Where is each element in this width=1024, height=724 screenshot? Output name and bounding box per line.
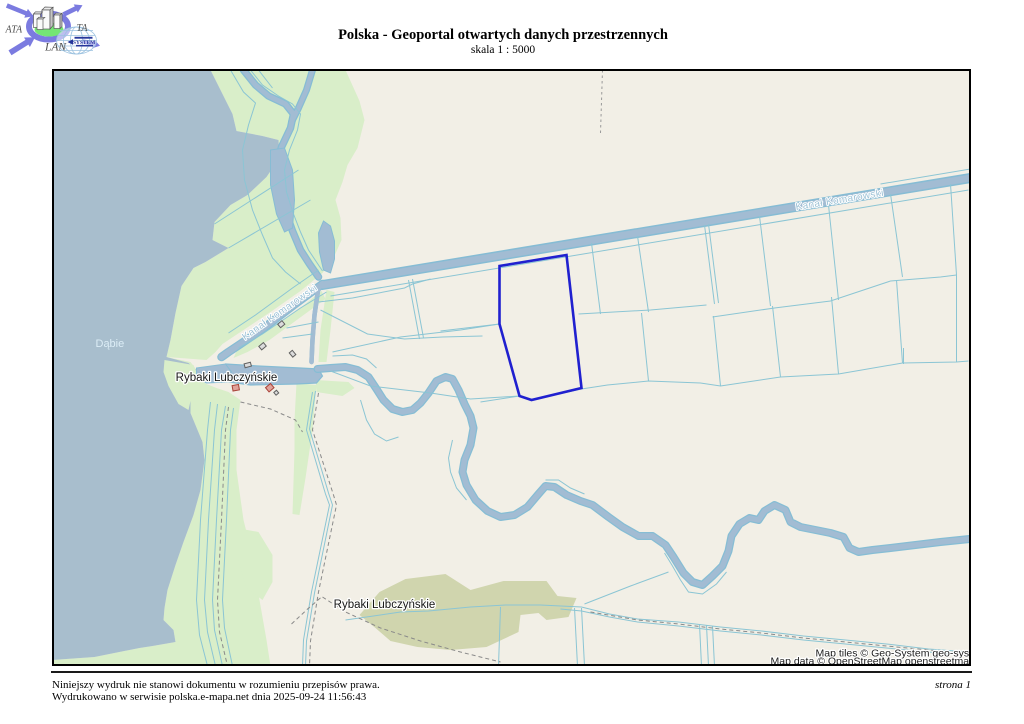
svg-text:Map data © OpenStreetMap opens: Map data © OpenStreetMap openstreetmap.o…: [770, 656, 969, 665]
svg-text:Dąbie: Dąbie: [95, 338, 124, 350]
svg-text:Rybaki Lubczyńskie: Rybaki Lubczyńskie: [333, 599, 435, 611]
svg-text:LAN: LAN: [44, 42, 67, 54]
svg-text:Rybaki Lubczyńskie: Rybaki Lubczyńskie: [175, 372, 277, 384]
svg-text:Kanał Komarowski: Kanał Komarowski: [794, 188, 884, 213]
svg-text:TA: TA: [77, 23, 89, 34]
svg-text:ATA: ATA: [5, 25, 24, 36]
svg-text:SYSTEM: SYSTEM: [73, 40, 95, 46]
